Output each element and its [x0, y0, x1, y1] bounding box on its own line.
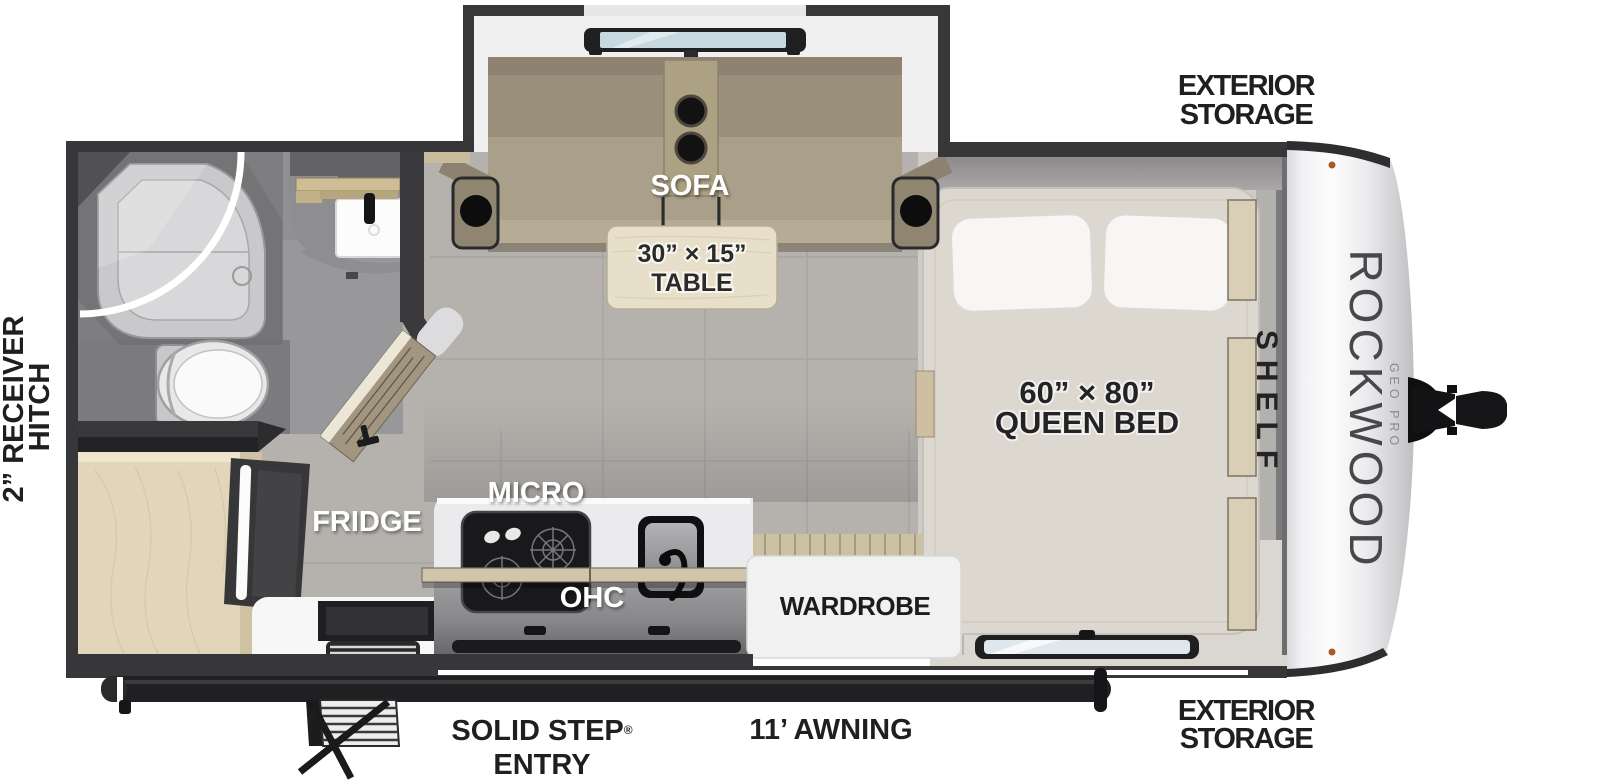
- svg-text:EXTERIOR: EXTERIOR: [1178, 70, 1316, 102]
- svg-text:STORAGE: STORAGE: [1180, 723, 1314, 755]
- svg-text:30” × 15”: 30” × 15”: [637, 240, 746, 268]
- svg-text:HITCH: HITCH: [24, 363, 56, 452]
- svg-text:11’ AWNING: 11’ AWNING: [749, 714, 912, 746]
- svg-text:OHC: OHC: [560, 582, 625, 614]
- svg-text:FRIDGE: FRIDGE: [312, 506, 422, 538]
- svg-text:SHELF: SHELF: [1250, 330, 1283, 478]
- svg-text:MICRO: MICRO: [488, 477, 585, 509]
- svg-text:ROCKWOOD: ROCKWOOD: [1340, 249, 1392, 570]
- svg-text:WARDROBE: WARDROBE: [780, 591, 931, 621]
- svg-text:ENTRY: ENTRY: [493, 749, 590, 781]
- svg-text:SOLID STEP®: SOLID STEP®: [451, 715, 632, 747]
- svg-text:GEO PRO: GEO PRO: [1387, 363, 1401, 449]
- svg-text:TABLE: TABLE: [651, 269, 732, 297]
- svg-text:QUEEN BED: QUEEN BED: [995, 405, 1179, 440]
- svg-text:STORAGE: STORAGE: [1180, 99, 1314, 131]
